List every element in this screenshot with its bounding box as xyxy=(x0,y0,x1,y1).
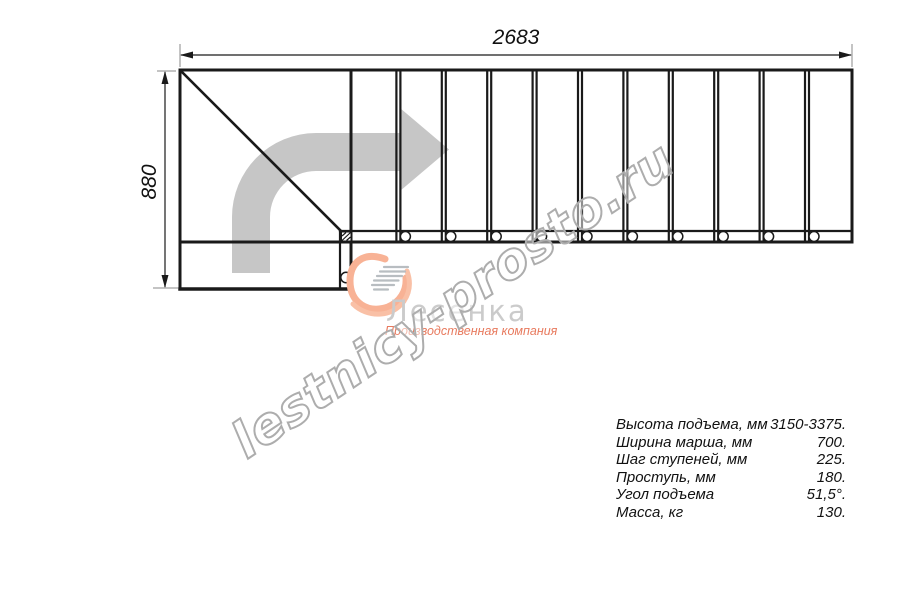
spec-row-mass: Масса, кг 130. xyxy=(616,504,846,522)
spec-value: 51,5°. xyxy=(807,486,846,504)
spec-label: Шаг ступеней, мм xyxy=(616,451,747,469)
spec-value: 180. xyxy=(817,469,846,487)
spec-row-flight-width: Ширина марша, мм 700. xyxy=(616,434,846,452)
spec-row-height: Высота подъема, мм 3150-3375. xyxy=(616,416,846,434)
newel-post-symbol xyxy=(341,232,352,242)
spec-label: Угол подъема xyxy=(616,486,714,504)
spec-row-tread: Проступь, мм 180. xyxy=(616,469,846,487)
spec-row-step-pitch: Шаг ступеней, мм 225. xyxy=(616,451,846,469)
spec-label: Высота подъема, мм xyxy=(616,416,768,434)
spec-label: Проступь, мм xyxy=(616,469,716,487)
specs-table: Высота подъема, мм 3150-3375. Ширина мар… xyxy=(616,416,846,522)
stair-plan-drawing-page: 2683 880 Лесенка Производственная компан… xyxy=(0,0,900,600)
spec-label: Масса, кг xyxy=(616,504,683,522)
spec-value: 130. xyxy=(817,504,846,522)
spec-value: 225. xyxy=(817,451,846,469)
spec-row-angle: Угол подъема 51,5°. xyxy=(616,486,846,504)
spec-label: Ширина марша, мм xyxy=(616,434,752,452)
spec-value: 700. xyxy=(817,434,846,452)
spec-value: 3150-3375. xyxy=(770,416,846,434)
